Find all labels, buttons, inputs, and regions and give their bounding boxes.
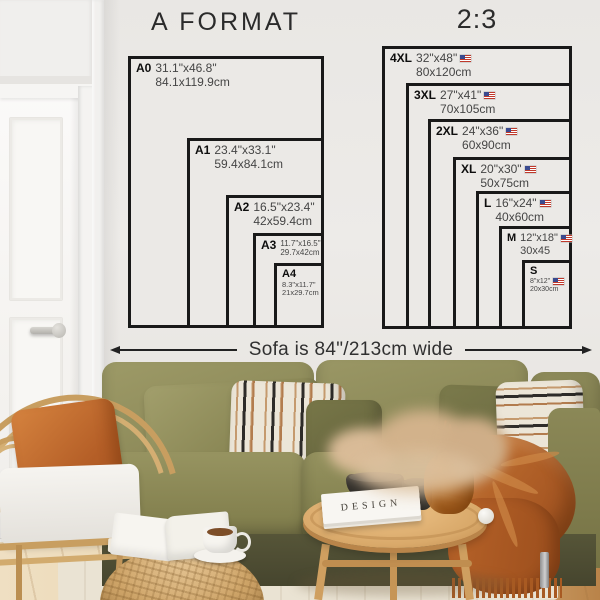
size-code: 4XL	[390, 52, 412, 80]
arrow-right-head-icon	[582, 346, 592, 354]
size-cm: 20x30cm	[530, 286, 567, 294]
size-code: XL	[461, 163, 476, 191]
size-cm: 50x75cm	[480, 177, 535, 191]
arrow-label: Sofa is 84"/213cm wide	[249, 339, 454, 361]
size-cm: 21x29.7cm	[282, 289, 319, 298]
size-code: 2XL	[436, 125, 458, 153]
chart-title-2-3: 2:3	[382, 4, 572, 35]
size-label: 4XL 32"x48" 80x120cm	[385, 49, 569, 80]
size-inches: 16"x24"	[495, 197, 536, 211]
size-cm: 84.1x119.9cm	[155, 76, 230, 90]
scene: A FORMAT A0 31.1"x46.8" 84.1x119.9cm A1 …	[0, 0, 600, 600]
size-label: S 8"x12" 20x30cm	[525, 263, 569, 294]
size-dims: 12"x18" 30x45	[520, 232, 572, 257]
size-code: M	[507, 232, 516, 257]
size-code: A3	[261, 239, 276, 257]
size-code: A2	[234, 201, 249, 229]
size-inches: 24"x36"	[462, 125, 503, 139]
size-box-s: S 8"x12" 20x30cm	[522, 260, 572, 329]
size-dims: 16.5"x23.4" 42x59.4cm	[253, 201, 314, 229]
size-inches: 20"x30"	[480, 163, 521, 177]
size-dims: 32"x48" 80x120cm	[416, 52, 471, 80]
size-label: L 16"x24" 40x60cm	[479, 194, 569, 225]
us-flag-icon	[553, 278, 564, 285]
design-book-title: DESIGN	[340, 497, 401, 513]
size-code: A0	[136, 62, 151, 90]
size-dims: 8.3"x11.7" 21x29.7cm	[282, 281, 319, 298]
door-handle-rosette	[52, 323, 66, 338]
size-inches: 23.4"x33.1"	[214, 144, 275, 158]
us-flag-icon	[506, 128, 517, 135]
size-cm: 42x59.4cm	[253, 215, 314, 229]
size-dims: 23.4"x33.1" 59.4x84.1cm	[214, 144, 283, 172]
size-dims: 20"x30" 50x75cm	[480, 163, 535, 191]
us-flag-icon	[460, 55, 471, 62]
arrow-left-head-icon	[110, 346, 120, 354]
coffee-cup-handle	[233, 532, 251, 552]
table-brace	[322, 560, 472, 567]
size-cm: 70x105cm	[440, 103, 495, 117]
size-box-a4: A4 8.3"x11.7" 21x29.7cm	[274, 263, 324, 328]
table-shadow	[296, 572, 510, 596]
size-code: S	[530, 265, 567, 278]
table-leg	[390, 548, 397, 600]
us-flag-icon	[540, 200, 551, 207]
size-label: 3XL 27"x41" 70x105cm	[409, 86, 569, 117]
size-label: M 12"x18" 30x45	[502, 229, 569, 257]
size-label: A3 11.7"x16.5" 29.7x42cm	[256, 236, 321, 257]
arrow-line	[120, 349, 237, 351]
size-dims: 11.7"x16.5" 29.7x42cm	[280, 239, 320, 257]
chair-leg	[16, 545, 22, 600]
size-cm: 29.7x42cm	[280, 248, 320, 257]
dried-flowers	[358, 452, 480, 494]
wall-panel-above-door	[0, 0, 92, 88]
size-cm: 60x90cm	[462, 139, 517, 153]
size-inches: 31.1"x46.8"	[155, 62, 216, 76]
size-inches: 27"x41"	[440, 89, 481, 103]
size-label: 2XL 24"x36" 60x90cm	[431, 122, 569, 153]
size-cm: 80x120cm	[416, 66, 471, 80]
size-dims: 16"x24" 40x60cm	[495, 197, 550, 225]
size-dims: 27"x41" 70x105cm	[440, 89, 495, 117]
size-dims: 31.1"x46.8" 84.1x119.9cm	[155, 62, 230, 90]
size-cm: 30x45	[520, 245, 572, 258]
us-flag-icon	[525, 166, 536, 173]
wall-trim	[0, 76, 92, 84]
size-label: XL 20"x30" 50x75cm	[456, 160, 569, 191]
us-flag-icon	[484, 92, 495, 99]
size-label: A1 23.4"x33.1" 59.4x84.1cm	[190, 141, 321, 172]
size-cm: 59.4x84.1cm	[214, 158, 283, 172]
size-inches: 12"x18"	[520, 232, 558, 245]
decor-ball	[478, 508, 494, 524]
size-cm: 40x60cm	[495, 211, 550, 225]
size-code: L	[484, 197, 491, 225]
size-code: 3XL	[414, 89, 436, 117]
size-inches: 32"x48"	[416, 52, 457, 66]
door-panel-top	[10, 118, 62, 300]
us-flag-icon	[561, 235, 572, 242]
sofa-width-arrow: Sofa is 84"/213cm wide	[110, 341, 592, 359]
arrow-line	[465, 349, 582, 351]
size-label: A4 8.3"x11.7" 21x29.7cm	[277, 266, 321, 298]
size-label: A2 16.5"x23.4" 42x59.4cm	[229, 198, 321, 229]
size-code: A1	[195, 144, 210, 172]
size-code: A4	[282, 268, 319, 281]
sofa-leg	[540, 552, 549, 588]
size-inches: 8"x12"	[530, 278, 550, 286]
size-dims: 24"x36" 60x90cm	[462, 125, 517, 153]
size-label: A0 31.1"x46.8" 84.1x119.9cm	[131, 59, 321, 90]
size-inches: 16.5"x23.4"	[253, 201, 314, 215]
size-dims: 8"x12" 20x30cm	[530, 278, 567, 294]
coffee-cup	[203, 526, 237, 553]
size-inches: 11.7"x16.5"	[280, 239, 320, 248]
chart-title-a-format: A FORMAT	[128, 8, 324, 37]
